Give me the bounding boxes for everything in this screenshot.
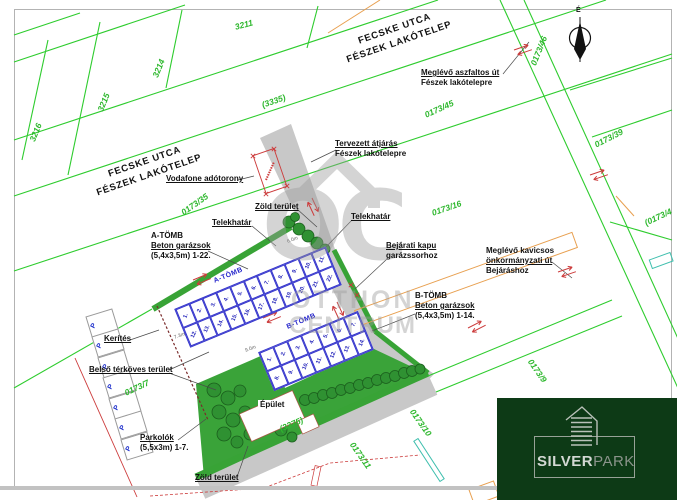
logo-park: PARK	[593, 453, 635, 470]
label-text: Vodafone adótorony	[166, 174, 243, 183]
label-text: Tervezett átjárás	[335, 139, 406, 149]
label-text: B-TÖMB	[415, 291, 475, 301]
label-text: Zöld terület	[195, 473, 239, 482]
north-arrow-icon	[570, 17, 591, 62]
label-building: Épület	[258, 400, 286, 410]
building-icon	[562, 404, 608, 454]
label-text: Zöld terület	[255, 202, 299, 211]
label-text: Meglévő aszfaltos út	[421, 68, 499, 78]
label-text: Belső térköves terület	[89, 365, 173, 374]
label-text: (5,4x3,5m) 1-14.	[415, 311, 475, 321]
north-label: É	[576, 7, 581, 14]
label-plot-boundary-right: Telekhatár	[351, 212, 390, 222]
label-text: garázssorhoz	[386, 251, 438, 261]
label-text: Beton garázsok	[151, 241, 211, 251]
label-block-b: B-TÖMB Beton garázsok (5,4x3,5m) 1-14.	[415, 291, 475, 321]
label-parking: Parkolók (5,5x3m) 1-7.	[140, 433, 188, 453]
label-green-area-top: Zöld terület	[255, 202, 299, 212]
label-text: Bejárati kapu	[386, 241, 438, 251]
label-existing-asphalt-road: Meglévő aszfaltos út Fészek lakótelepre	[421, 68, 499, 88]
label-gravel-road: Meglévő kavicsos önkormányzati út Bejárá…	[486, 246, 554, 276]
label-planned-passage: Tervezett átjárás Fészek lakótelepre	[335, 139, 406, 159]
label-text: Bejáráshoz	[486, 266, 554, 276]
label-block-a: A-TÖMB Beton garázsok (5,4x3,5m) 1-22.	[151, 231, 211, 261]
label-green-area-bottom: Zöld terület	[195, 473, 239, 483]
label-text: Telekhatár	[351, 212, 390, 221]
silverpark-logo-box: SILVERPARK	[497, 398, 677, 500]
label-text: Fészek lakótelepre	[335, 149, 406, 159]
logo-silver: SILVER	[537, 453, 593, 470]
label-text: Kerítés	[104, 334, 131, 343]
bottom-edge-bar	[0, 486, 500, 490]
logo-text: SILVERPARK	[537, 453, 635, 470]
label-text: (5,5x3m) 1-7.	[140, 443, 188, 453]
label-paved-area: Belső térköves terület	[89, 365, 173, 375]
label-text: (5,4x3,5m) 1-22.	[151, 251, 211, 261]
label-plot-boundary-left: Telekhatár	[212, 218, 251, 228]
label-text: Meglévő kavicsos	[486, 246, 554, 256]
label-text: Telekhatár	[212, 218, 251, 227]
label-text: Beton garázsok	[415, 301, 475, 311]
label-entry-gate: Bejárati kapu garázssorhoz	[386, 241, 438, 261]
site-plan-canvas: FECSKE UTCA FÉSZEK LAKÓTELEP FECSKE UTCA…	[0, 0, 677, 500]
label-text: A-TÖMB	[151, 231, 211, 241]
label-text: Fészek lakótelepre	[421, 78, 499, 88]
label-fence: Kerítés	[104, 334, 131, 344]
label-text: önkormányzati út	[486, 256, 554, 266]
label-text: Parkolók	[140, 433, 188, 443]
label-vodafone-tower: Vodafone adótorony	[166, 174, 243, 184]
label-text: Épület	[260, 400, 284, 409]
